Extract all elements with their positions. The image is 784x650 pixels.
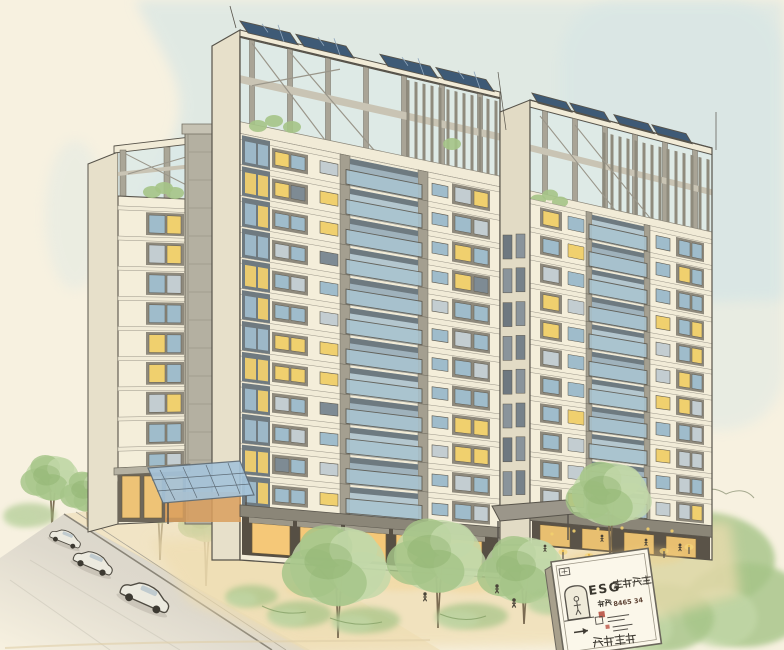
window (656, 289, 670, 305)
window (291, 398, 305, 413)
window (245, 327, 256, 349)
window (432, 445, 448, 458)
window (656, 395, 670, 410)
window (245, 358, 256, 380)
window (455, 504, 471, 520)
window (474, 363, 488, 379)
window (275, 213, 289, 229)
window (656, 475, 670, 489)
window (291, 277, 305, 293)
window (291, 246, 305, 262)
string-light (550, 532, 553, 535)
side-window (516, 268, 525, 292)
window (258, 390, 268, 412)
window (679, 504, 690, 519)
window (275, 152, 289, 168)
pergola-slat (659, 147, 662, 226)
side-window (503, 438, 512, 462)
window (167, 275, 181, 293)
window (258, 206, 268, 229)
window (275, 274, 289, 290)
window (149, 245, 165, 263)
window (455, 360, 471, 377)
side-window (503, 370, 512, 394)
window (258, 329, 268, 351)
window (568, 438, 584, 453)
window (432, 358, 448, 372)
window (149, 335, 165, 353)
window (455, 475, 471, 491)
window (474, 219, 488, 236)
pergola-slat (683, 153, 686, 231)
window (543, 378, 559, 394)
side-window (503, 303, 512, 327)
pergola-slat (603, 132, 606, 213)
window (543, 406, 559, 422)
window (692, 374, 702, 390)
window (167, 245, 181, 263)
window (474, 305, 488, 322)
side-window (516, 403, 525, 427)
window (258, 483, 268, 505)
window (692, 348, 702, 364)
window (692, 506, 702, 521)
window (291, 429, 305, 444)
window (656, 342, 670, 357)
pergola-slat (415, 82, 418, 165)
window (258, 236, 268, 259)
window (432, 387, 448, 401)
window (320, 432, 338, 446)
pergola-slat (447, 89, 450, 171)
window (474, 449, 488, 465)
window (656, 449, 670, 463)
window (474, 191, 488, 208)
pergola-slat (635, 140, 638, 220)
window (320, 281, 338, 296)
window (455, 302, 471, 319)
person-head (645, 539, 648, 542)
window (275, 243, 289, 259)
bush (4, 510, 35, 527)
window (679, 372, 690, 388)
window (474, 334, 488, 351)
tree-canopy-shade (304, 543, 352, 579)
roof-shrub (265, 115, 283, 127)
window (432, 270, 448, 284)
window (245, 265, 256, 288)
window (474, 477, 488, 493)
bush (268, 609, 306, 627)
bollard-bulb (562, 550, 564, 552)
window (275, 182, 289, 198)
window (167, 305, 181, 323)
window (275, 366, 289, 381)
window (543, 267, 559, 284)
window (275, 397, 289, 412)
person-head (601, 535, 604, 538)
roof-shrub (443, 138, 461, 150)
main-tower (212, 6, 500, 578)
side-window (516, 302, 525, 326)
window (275, 488, 289, 503)
window (692, 243, 702, 259)
pergola-slat (463, 93, 466, 175)
window (320, 342, 338, 357)
window (149, 365, 165, 383)
roof-shrub (249, 120, 267, 132)
window (291, 368, 305, 383)
window (679, 451, 690, 467)
window (245, 203, 256, 226)
window (149, 394, 165, 412)
window (149, 215, 165, 233)
window (679, 399, 690, 415)
window (149, 275, 165, 293)
window (291, 155, 305, 171)
side-window (516, 335, 525, 359)
window (692, 427, 702, 443)
window (474, 248, 488, 265)
window (679, 425, 690, 441)
person-head (679, 544, 682, 547)
window (320, 462, 338, 476)
window (543, 434, 559, 450)
window (692, 269, 702, 285)
side-window (503, 269, 512, 293)
pergola-slat (667, 149, 670, 228)
window (656, 315, 670, 330)
person-head (512, 598, 516, 602)
window (291, 307, 305, 322)
window (692, 479, 702, 494)
window (258, 452, 268, 474)
arcade-glow (582, 528, 612, 551)
window (679, 319, 690, 335)
window (149, 424, 165, 442)
window (679, 240, 690, 257)
window (679, 346, 690, 362)
side-window (503, 404, 512, 428)
window (291, 338, 305, 353)
pergola-slat (699, 157, 702, 235)
window (455, 273, 471, 290)
window (455, 187, 471, 205)
window (245, 141, 256, 164)
pergola-slat (455, 91, 458, 173)
window (245, 420, 256, 442)
window (692, 322, 702, 338)
window (656, 262, 670, 278)
storefront-window (122, 476, 140, 518)
window (167, 216, 181, 234)
window (432, 474, 448, 487)
bush (436, 611, 479, 629)
pergola-slat (495, 100, 498, 181)
floor-slab (118, 327, 185, 332)
window (432, 503, 448, 516)
window (474, 420, 488, 436)
window (432, 329, 448, 343)
string-light (646, 527, 649, 530)
window (291, 490, 305, 505)
window (656, 502, 670, 516)
window (258, 421, 268, 443)
pergola-slat (487, 99, 490, 180)
window (291, 185, 305, 201)
tree-canopy-shade (583, 476, 621, 505)
window (258, 359, 268, 381)
pergola-slat (675, 151, 678, 230)
window (474, 506, 488, 522)
side-window (503, 235, 512, 259)
window (568, 410, 584, 425)
window (432, 300, 448, 314)
window (692, 453, 702, 468)
illustration-stage: ESG 8465 34 (0, 0, 784, 650)
window (245, 234, 256, 257)
string-light (596, 527, 599, 530)
window (149, 305, 165, 323)
roof-shrub (166, 187, 184, 199)
pergola-slat (407, 80, 410, 164)
tree-canopy-shade (33, 465, 60, 486)
window (474, 391, 488, 407)
pergola-slat (651, 145, 654, 224)
string-light (670, 529, 673, 532)
window (167, 424, 181, 442)
side-window (503, 336, 512, 360)
window (455, 331, 471, 348)
person-head (495, 584, 498, 587)
window (656, 235, 670, 251)
string-light (620, 526, 623, 529)
window (568, 327, 584, 343)
window (455, 418, 471, 434)
pergola-slat (479, 97, 482, 178)
window (320, 402, 338, 416)
window (275, 458, 289, 473)
window (543, 294, 559, 311)
window (245, 296, 256, 319)
window (692, 401, 702, 417)
bollard-bulb (663, 549, 665, 551)
window (679, 293, 690, 309)
pergola-slat (423, 84, 426, 167)
string-light (572, 529, 575, 532)
signboard: ESG 8465 34 (544, 548, 662, 650)
pergola-slat (431, 85, 434, 168)
left-tower-side-face (88, 152, 118, 532)
window (543, 239, 559, 256)
side-window (516, 471, 525, 495)
window (455, 245, 471, 262)
floor-slab (118, 386, 185, 390)
storefront-window (252, 523, 290, 556)
window (245, 450, 256, 472)
window (245, 389, 256, 411)
pergola-slat (619, 136, 622, 217)
pergola-slat (707, 159, 710, 237)
window (167, 335, 181, 353)
tree-canopy-shade (407, 535, 451, 568)
window (679, 478, 690, 494)
pergola-slat (691, 155, 694, 233)
window (320, 493, 338, 507)
window (258, 144, 268, 167)
window (656, 369, 670, 384)
person-head (423, 592, 426, 595)
window (679, 266, 690, 283)
window (455, 446, 471, 462)
window (543, 350, 559, 366)
pergola-slat (471, 95, 474, 177)
pergola-slat (439, 87, 442, 170)
roof-shrub (283, 121, 301, 133)
window (455, 389, 471, 406)
entrance-glass-canopy (148, 461, 254, 503)
window (258, 298, 268, 320)
window (291, 216, 305, 232)
illustration-canvas: ESG 8465 34 (0, 0, 784, 650)
pergola-slat (627, 138, 630, 218)
window (656, 422, 670, 437)
window (543, 462, 559, 478)
tree-canopy-shade (496, 551, 536, 581)
floor-slab (118, 296, 185, 301)
window (320, 372, 338, 386)
window (275, 335, 289, 350)
window (245, 172, 256, 195)
bollard-bulb (688, 545, 690, 547)
window (167, 365, 181, 383)
window (291, 459, 305, 474)
bush (226, 592, 257, 607)
window (258, 175, 268, 198)
window (432, 416, 448, 430)
pergola-slat (611, 134, 614, 215)
window (568, 354, 584, 370)
window (474, 277, 488, 294)
window (275, 427, 289, 442)
window (543, 322, 559, 339)
window (455, 216, 471, 234)
window (258, 267, 268, 289)
side-window (516, 437, 525, 461)
window (568, 299, 584, 315)
window (320, 312, 338, 327)
floor-slab (118, 416, 185, 421)
window (568, 382, 584, 398)
window (275, 305, 289, 320)
floor-slab (118, 357, 185, 361)
window (692, 295, 702, 311)
window (432, 241, 448, 256)
person-head (544, 545, 547, 548)
side-window (516, 234, 525, 258)
side-window (503, 472, 512, 496)
side-window (516, 369, 525, 393)
window (167, 394, 181, 412)
